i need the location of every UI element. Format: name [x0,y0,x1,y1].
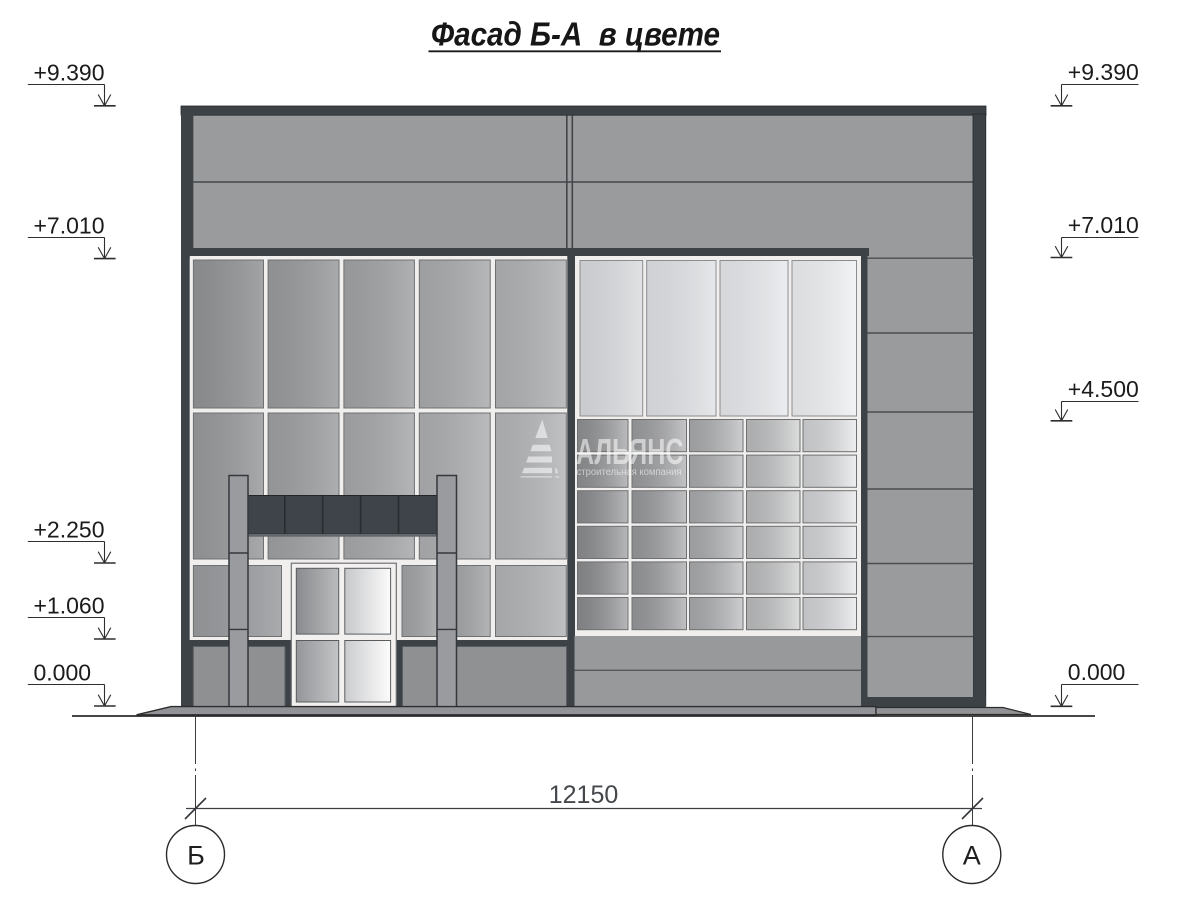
svg-text:+9.390: +9.390 [34,60,105,86]
svg-text:12150: 12150 [549,781,619,809]
svg-text:+4.500: +4.500 [1068,376,1139,402]
svg-text:А: А [963,840,981,870]
svg-text:Б: Б [187,840,205,870]
svg-text:Фасад Б-А в цвете: Фасад Б-А в цвете [431,16,720,53]
svg-text:строительная компания: строительная компания [577,467,682,478]
svg-text:+2.250: +2.250 [34,517,105,543]
svg-text:+7.010: +7.010 [34,213,105,239]
svg-text:0.000: 0.000 [34,660,92,686]
svg-text:+7.010: +7.010 [1068,212,1139,238]
svg-text:АЛЬЯНС: АЛЬЯНС [576,431,684,472]
svg-text:0.000: 0.000 [1068,659,1126,685]
svg-text:+9.390: +9.390 [1068,59,1139,85]
svg-text:+1.060: +1.060 [34,593,105,619]
